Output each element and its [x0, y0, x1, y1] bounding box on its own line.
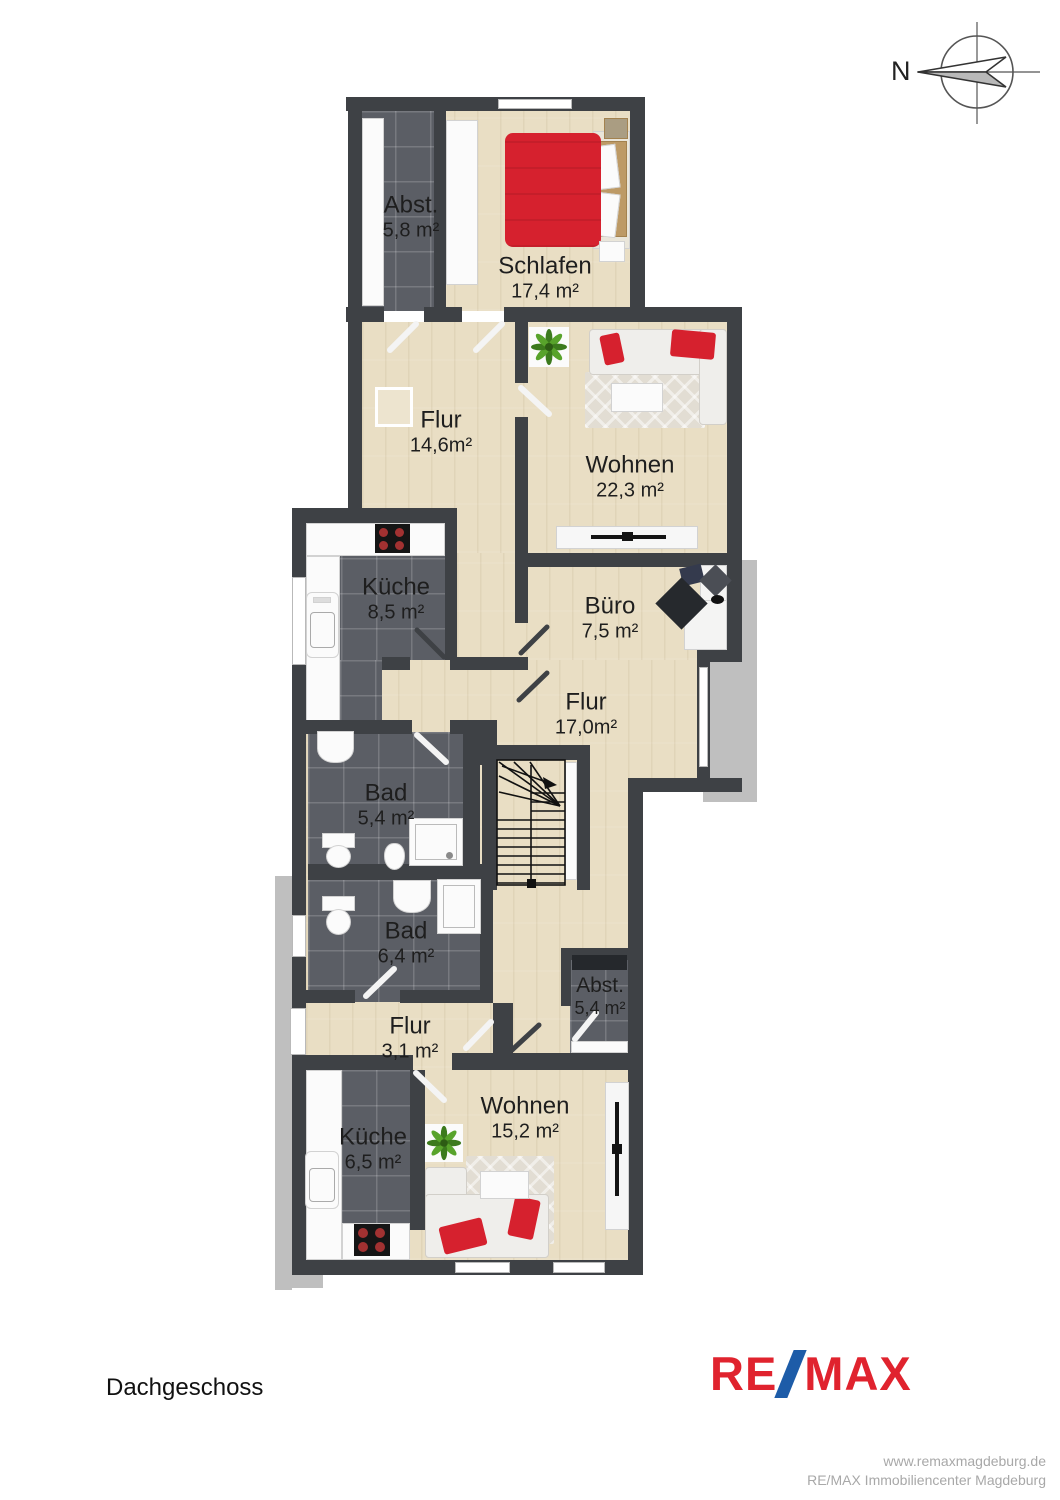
room-label-kueche-85: Küche 8,5 m² [362, 574, 430, 623]
toilet-bowl [326, 909, 351, 935]
room-area: 5,8 m² [383, 219, 440, 241]
floor-title: Dachgeschoss [106, 1374, 263, 1402]
stair-railing [565, 762, 577, 880]
floorplan-page: Abst. 5,8 m² Schlafen 17,4 m² Flur 14,6m… [0, 0, 1060, 1500]
burner [358, 1242, 368, 1252]
room-area: 17,4 m² [498, 280, 591, 302]
room-name: Bad [358, 780, 415, 807]
compass-north-label: N [891, 56, 911, 87]
logo-max: MAX [804, 1346, 911, 1401]
wall-segment [306, 990, 355, 1003]
room-label-schlafen: Schlafen 17,4 m² [498, 253, 591, 302]
toilet-bowl [326, 845, 351, 868]
room-label-abstellraum-54: Abst. 5,4 m² [574, 974, 625, 1018]
building-shadow [275, 876, 292, 1290]
room-area: 17,0m² [555, 716, 617, 738]
tv-base [612, 1144, 622, 1154]
window [498, 99, 572, 109]
burner [395, 541, 404, 550]
room-area: 3,1 m² [382, 1040, 439, 1062]
wall-segment [346, 307, 384, 322]
plant-pot [425, 1124, 463, 1162]
wall-segment [463, 734, 480, 880]
sink-basin [310, 612, 335, 648]
wall-segment [452, 1053, 628, 1070]
wall-segment [561, 948, 571, 1006]
wall-segment [504, 307, 630, 322]
faucet [313, 597, 331, 603]
burner [375, 1242, 385, 1252]
shelf-abstellraum [362, 118, 384, 306]
wall-segment [382, 657, 410, 670]
room-area: 14,6m² [410, 434, 472, 456]
building-shadow [742, 560, 757, 802]
wall-segment [410, 1070, 425, 1230]
sink-basin [309, 1168, 335, 1202]
footer-credits: www.remaxmagdeburg.de RE/MAX Immobilienc… [807, 1452, 1046, 1490]
desk-accessory [711, 595, 724, 604]
wall-segment [515, 417, 528, 623]
room-name: Abst. [383, 192, 440, 219]
room-label-flur-146: Flur 14,6m² [410, 407, 472, 456]
wall-segment [400, 990, 493, 1003]
wall-segment [630, 307, 742, 322]
burner [379, 528, 388, 537]
wall-segment [346, 97, 645, 111]
room-label-flur-170: Flur 17,0m² [555, 689, 617, 738]
burner [375, 1228, 385, 1238]
shower-tray [443, 885, 475, 928]
wall-segment [493, 1003, 513, 1053]
bathroom-sink [393, 880, 431, 913]
room-area: 6,5 m² [339, 1151, 407, 1173]
room-name: Abst. [574, 974, 625, 998]
burner [358, 1228, 368, 1238]
wall-segment [630, 97, 645, 322]
logo-slash-icon [775, 1350, 807, 1398]
wall-segment [482, 745, 590, 760]
room-area: 8,5 m² [362, 601, 430, 623]
room-area: 22,3 m² [586, 479, 675, 501]
room-area: 15,2 m² [481, 1120, 570, 1142]
wall-segment [515, 322, 528, 383]
room-label-flur-31: Flur 3,1 m² [382, 1013, 439, 1062]
footer-website: www.remaxmagdeburg.de [807, 1452, 1046, 1471]
room-name: Bad [378, 918, 435, 945]
building-shadow [710, 662, 742, 780]
room-name: Wohnen [586, 452, 675, 479]
wall-segment [424, 307, 462, 322]
room-name: Küche [362, 574, 430, 601]
room-name: Büro [582, 593, 639, 620]
bathroom-sink [317, 731, 354, 763]
room-area: 7,5 m² [582, 620, 639, 642]
room-area: 5,4 m² [574, 998, 625, 1018]
room-label-bad-54: Bad 5,4 m² [358, 780, 415, 829]
wall-segment [628, 778, 742, 792]
wall-segment [450, 657, 528, 670]
room-label-kueche-65: Küche 6,5 m² [339, 1124, 407, 1173]
nightstand [604, 118, 628, 139]
coffee-table [480, 1171, 529, 1199]
burner [379, 541, 388, 550]
abstellraum-sill [571, 1041, 628, 1053]
room-name: Flur [382, 1013, 439, 1040]
wall-segment [445, 523, 457, 660]
window [553, 1262, 605, 1273]
room-label-abstellraum-58: Abst. 5,8 m² [383, 192, 440, 241]
room-area: 5,4 m² [358, 807, 415, 829]
plant-pot [529, 327, 569, 367]
window [292, 577, 306, 665]
wall-segment [727, 307, 742, 662]
window [699, 667, 708, 767]
wardrobe-schlafen [446, 120, 478, 285]
room-label-wohnen-152: Wohnen 15,2 m² [481, 1093, 570, 1142]
wall-segment [480, 880, 493, 1003]
bidet [384, 843, 405, 870]
remax-logo: RE MAX [710, 1346, 912, 1401]
shower-drain [446, 852, 453, 859]
window [290, 1008, 306, 1055]
room-label-wohnen-223: Wohnen 22,3 m² [586, 452, 675, 501]
room-label-bad-64: Bad 6,4 m² [378, 918, 435, 967]
room-name: Flur [555, 689, 617, 716]
room-name: Flur [410, 407, 472, 434]
wall-segment [577, 745, 590, 890]
room-name: Wohnen [481, 1093, 570, 1120]
logo-re: RE [710, 1346, 777, 1401]
bed-duvet [505, 133, 601, 247]
storage-shelf [572, 955, 627, 970]
footer-company: RE/MAX Immobiliencenter Magdeburg [807, 1471, 1046, 1490]
doormat [375, 387, 413, 427]
wall-segment [348, 97, 362, 510]
window [455, 1262, 510, 1273]
nightstand [599, 241, 625, 262]
room-label-buero: Büro 7,5 m² [582, 593, 639, 642]
room-name: Schlafen [498, 253, 591, 280]
tv-base [622, 532, 633, 541]
room-name: Küche [339, 1124, 407, 1151]
burner [395, 528, 404, 537]
wall-segment [628, 778, 643, 1275]
coffee-table [611, 383, 663, 412]
room-area: 6,4 m² [378, 945, 435, 967]
sofa-blanket [670, 329, 716, 360]
floor-kueche-85 [340, 660, 382, 722]
wall-segment [292, 508, 457, 523]
window [292, 915, 306, 957]
